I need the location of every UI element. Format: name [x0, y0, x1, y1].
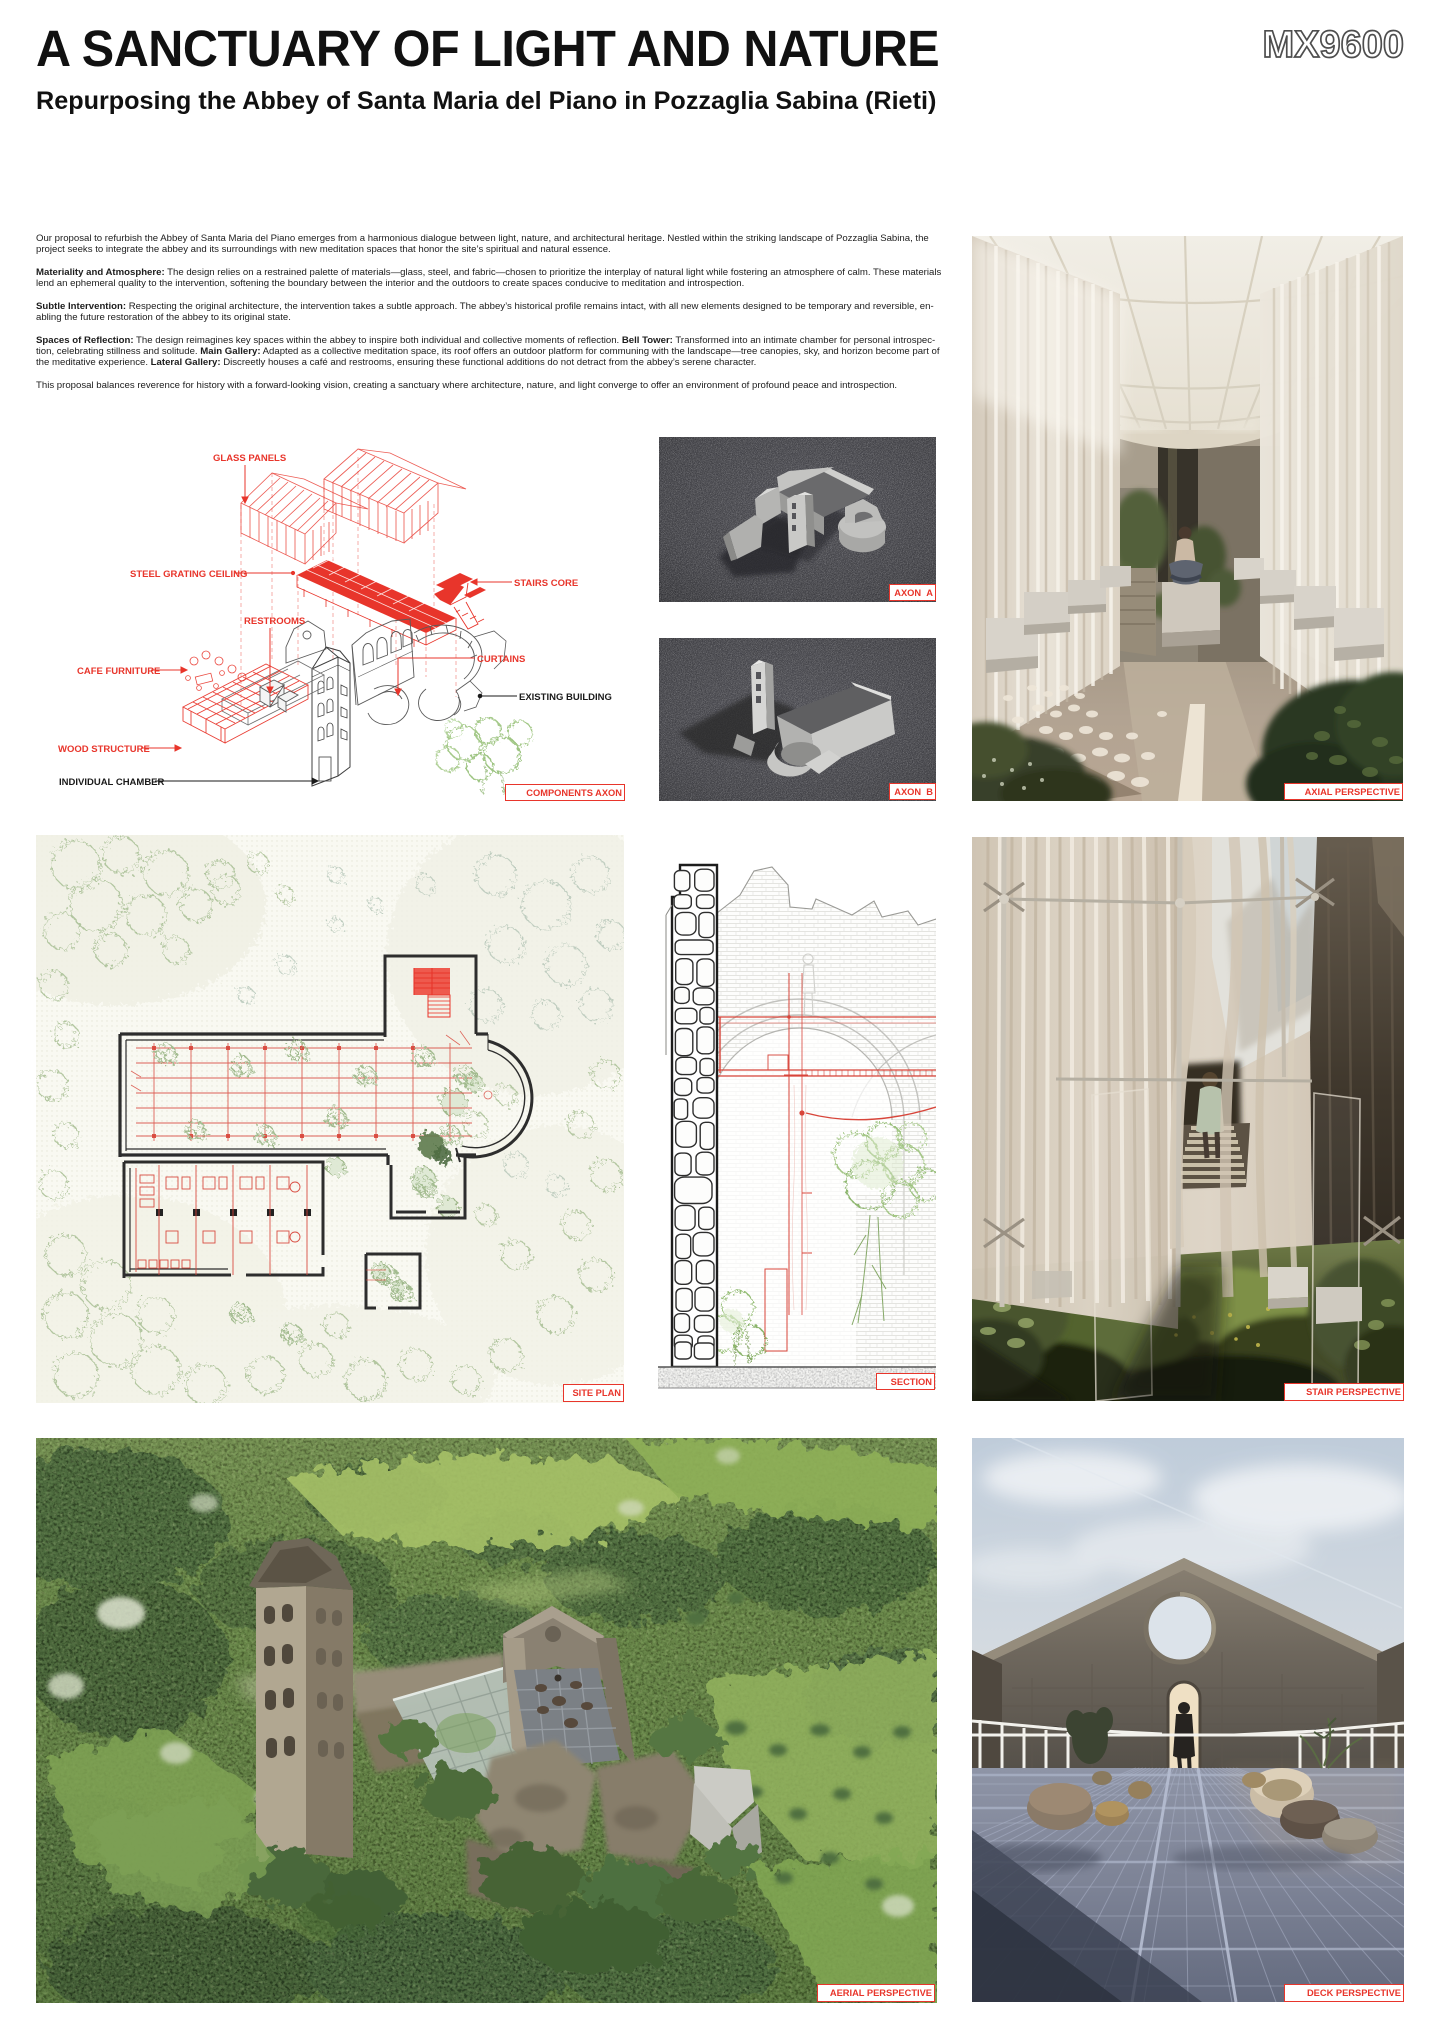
- svg-text:INDIVIDUAL CHAMBER: INDIVIDUAL CHAMBER: [59, 777, 165, 788]
- svg-text:STAIRS CORE: STAIRS CORE: [514, 578, 578, 589]
- svg-text:CURTAINS: CURTAINS: [477, 654, 525, 665]
- svg-text:CAFE FURNITURE: CAFE FURNITURE: [77, 666, 160, 677]
- svg-text:STEEL GRATING CEILING: STEEL GRATING CEILING: [130, 569, 247, 580]
- svg-text:GLASS PANELS: GLASS PANELS: [213, 453, 286, 464]
- svg-text:WOOD STRUCTURE: WOOD STRUCTURE: [58, 744, 150, 755]
- svg-text:RESTROOMS: RESTROOMS: [244, 616, 305, 627]
- svg-text:EXISTING BUILDING: EXISTING BUILDING: [519, 692, 612, 703]
